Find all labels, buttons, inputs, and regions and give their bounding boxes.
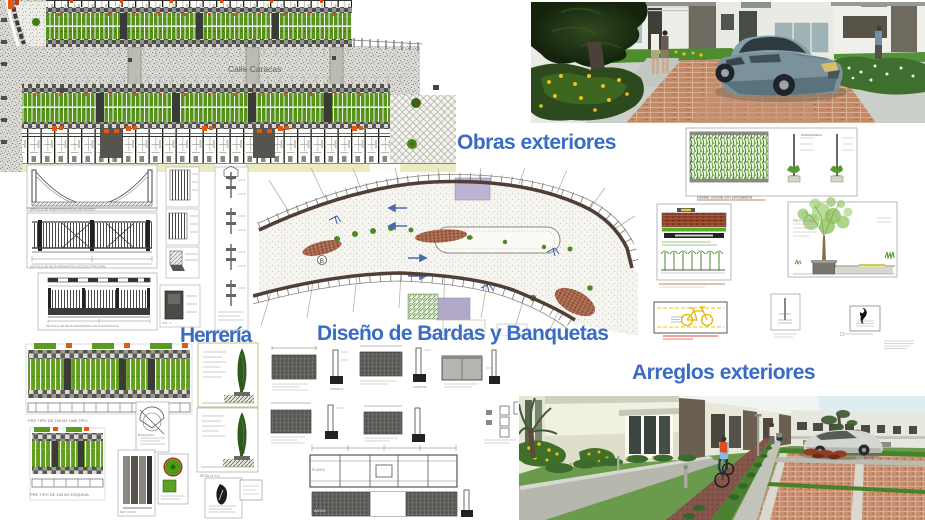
svg-text:ENREDADERA: ENREDADERA — [801, 133, 822, 137]
svg-text:DET. MURO: DET. MURO — [120, 510, 137, 514]
svg-text:DETALLE DE PUERTA PEATONAL EN: DETALLE DE PUERTA PEATONAL EN ACCESO — [30, 208, 96, 212]
svg-text:DETALLE DE REJA PERIMETRAL EN: DETALLE DE REJA PERIMETRAL EN COLINDANCI… — [46, 324, 119, 328]
svg-text:Calle Caracas: Calle Caracas — [228, 64, 281, 74]
svg-text:PLANTA: PLANTA — [312, 468, 326, 472]
svg-text:BARDA: BARDA — [314, 509, 326, 513]
svg-text:BANQUETA: BANQUETA — [138, 433, 154, 437]
svg-text:B: B — [320, 258, 324, 265]
svg-text:PRE TIPO DE 105 M2 ESQUINA: PRE TIPO DE 105 M2 ESQUINA — [30, 492, 89, 497]
svg-text:CORTE B: CORTE B — [413, 385, 426, 389]
svg-text:PROYECCION: PROYECCION — [793, 219, 815, 223]
svg-text:PRE TIPO DE 105 M2 HAB TIPO: PRE TIPO DE 105 M2 HAB TIPO — [28, 418, 87, 423]
svg-text:ICR - 1: ICR - 1 — [162, 321, 172, 325]
svg-text:CORTE A: CORTE A — [330, 387, 343, 391]
svg-text:Detalle celosia con enredadera: Detalle celosia con enredadera — [697, 195, 753, 200]
svg-text:DETALLE A-2: DETALLE A-2 — [200, 474, 220, 478]
svg-text:DETALLE DE REJA PERIMETRAL ACC: DETALLE DE REJA PERIMETRAL ACCESO PRINCI… — [30, 265, 106, 269]
